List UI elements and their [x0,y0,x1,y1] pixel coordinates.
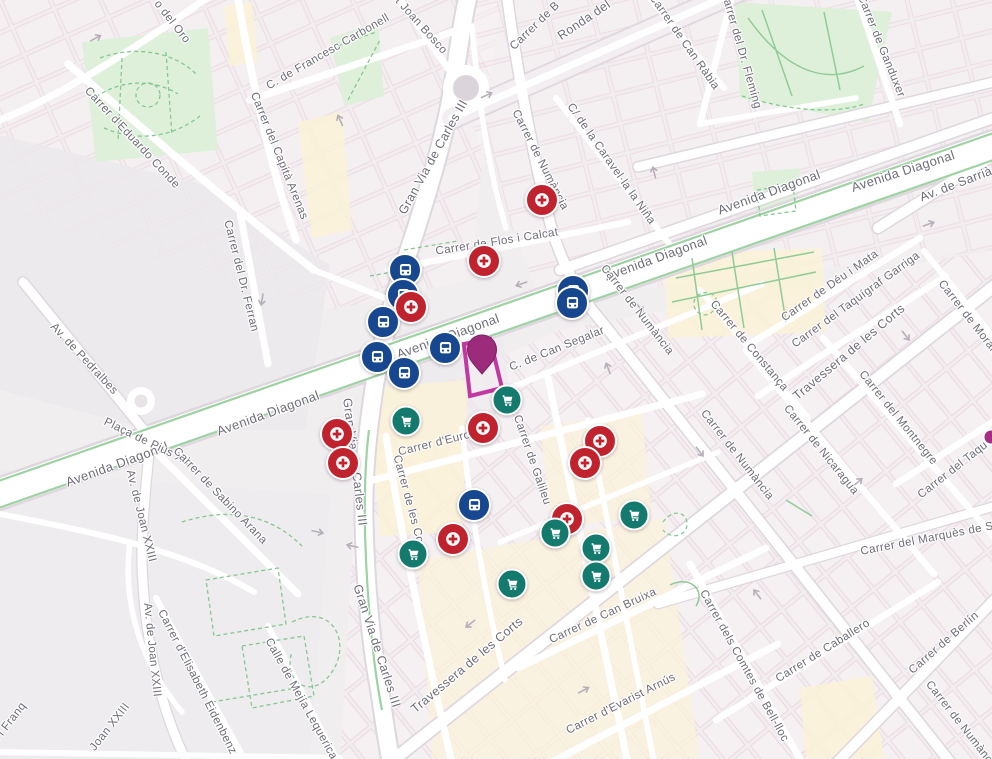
bus-icon [436,339,455,358]
edge-place-marker[interactable] [983,429,992,446]
medical-cross-icon [443,529,463,549]
shopping-cart-icon [546,524,564,542]
medical-cross-icon [327,424,347,444]
bus-stop-marker[interactable] [387,356,421,390]
supermarket-marker[interactable] [497,569,528,600]
bus-icon [395,364,414,383]
bus-icon [563,294,582,313]
bus-stop-marker[interactable] [428,331,462,365]
shopping-cart-icon [397,412,415,430]
supermarket-marker[interactable] [581,561,612,592]
shopping-cart-icon [587,539,605,557]
supermarket-marker[interactable] [581,533,612,564]
bus-stop-marker[interactable] [457,488,491,522]
bus-icon [396,261,415,280]
pharmacy-marker[interactable] [466,411,500,445]
supermarket-marker[interactable] [492,385,523,416]
pharmacy-marker[interactable] [436,522,470,556]
shopping-cart-icon [503,575,521,593]
supermarket-marker[interactable] [619,500,650,531]
supermarket-marker[interactable] [398,539,429,570]
map-canvas[interactable]: o del OroC. de Francesc Carbonellt Joan … [0,0,992,759]
supermarket-marker[interactable] [391,406,422,437]
medical-cross-icon [333,453,353,473]
pharmacy-marker[interactable] [568,446,602,480]
medical-cross-icon [473,418,493,438]
pharmacy-marker[interactable] [326,446,360,480]
medical-cross-icon [474,251,494,271]
medical-cross-icon [532,190,552,210]
pharmacy-marker[interactable] [467,244,501,278]
shopping-cart-icon [498,391,516,409]
bus-icon [368,348,387,367]
medical-cross-icon [575,453,595,473]
supermarket-marker[interactable] [540,518,571,549]
shopping-cart-icon [587,567,605,585]
medical-cross-icon [401,297,421,317]
pharmacy-marker[interactable] [394,290,428,324]
shopping-cart-icon [404,545,422,563]
poi-markers [0,0,992,759]
bus-stop-marker[interactable] [555,286,589,320]
pharmacy-marker[interactable] [525,183,559,217]
bus-icon [374,313,393,332]
bus-icon [465,496,484,515]
shopping-cart-icon [625,506,643,524]
